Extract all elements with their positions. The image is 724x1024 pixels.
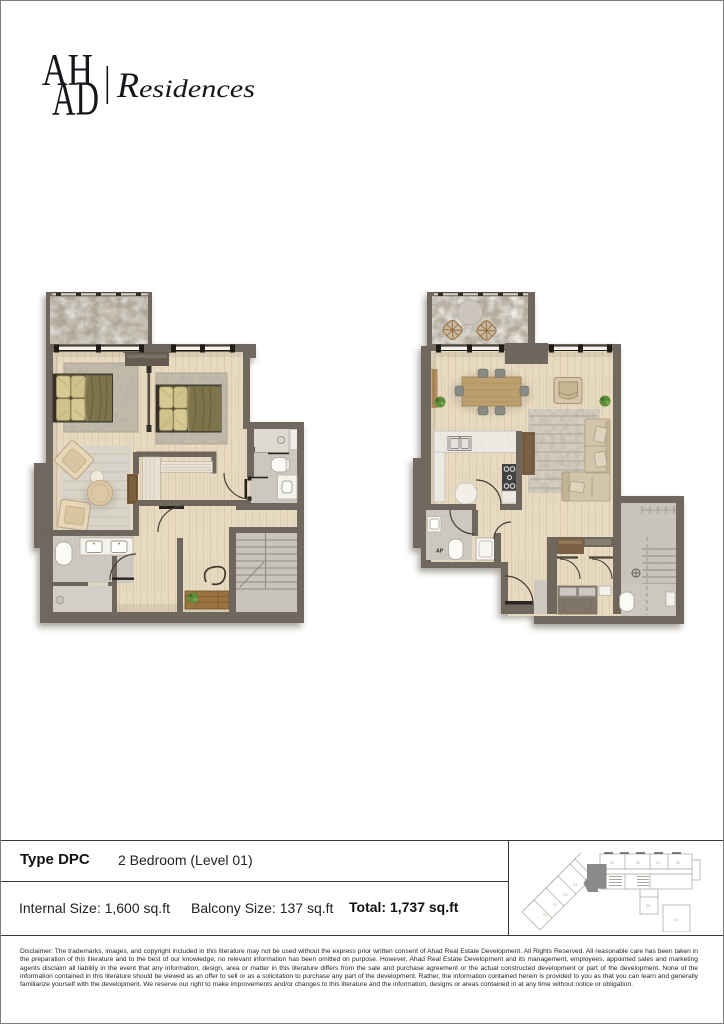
svg-text:05: 05 <box>610 860 615 865</box>
svg-text:04: 04 <box>573 882 578 887</box>
svg-text:03: 03 <box>563 892 568 897</box>
svg-text:07: 07 <box>656 860 661 865</box>
svg-text:08: 08 <box>676 860 681 865</box>
svg-text:Residences: Residences <box>116 65 255 105</box>
svg-text:02: 02 <box>553 902 558 907</box>
svg-text:AD: AD <box>52 71 99 126</box>
svg-text:09: 09 <box>646 903 651 908</box>
svg-text:10: 10 <box>673 917 678 922</box>
svg-text:06: 06 <box>636 860 641 865</box>
svg-text:AP: AP <box>436 549 444 555</box>
svg-text:01: 01 <box>543 912 548 917</box>
